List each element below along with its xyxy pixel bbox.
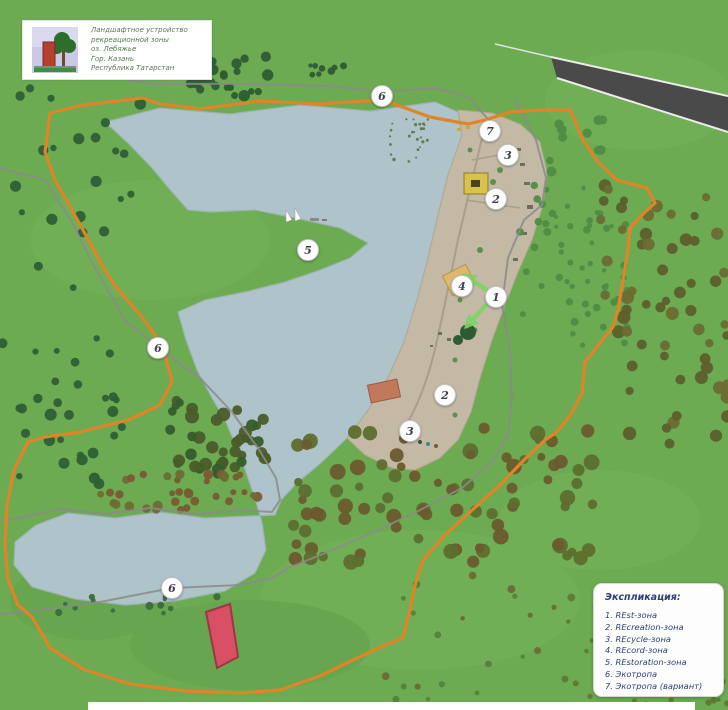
legend-list: 1. REst-зона2. REcreation-зона3. REcycle… xyxy=(605,610,723,692)
building-yellow-pavilion xyxy=(464,173,488,194)
map-title: Ландшафтное устройстворекреационной зоны… xyxy=(91,26,188,73)
title-line: Республика Татарстан xyxy=(91,64,188,73)
legend-item: 6. Экотропа xyxy=(605,669,723,681)
legend-item: 3. REcycle-зона xyxy=(605,634,723,646)
legend-item: 1. REst-зона xyxy=(605,610,723,622)
legend-item: 7. Экотропа (вариант) xyxy=(605,681,723,693)
legend-title: Экспликация: xyxy=(605,592,723,603)
title-line: оз. Лебяжье xyxy=(91,45,188,54)
title-block: Ландшафтное устройстворекреационной зоны… xyxy=(22,20,212,80)
landscape-logo-icon xyxy=(29,24,81,76)
legend-item: 2. REcreation-зона xyxy=(605,622,723,634)
page-bottom-strip xyxy=(88,702,695,710)
title-line: Ландшафтное устройство xyxy=(91,26,188,35)
legend-box: Экспликация: 1. REst-зона2. REcreation-з… xyxy=(593,583,724,697)
title-line: Гор. Казань xyxy=(91,55,188,64)
landscape-plan-map: Ландшафтное устройстворекреационной зоны… xyxy=(0,0,728,710)
legend-item: 4. REcord-зона xyxy=(605,645,723,657)
title-line: рекреационной зоны xyxy=(91,36,188,45)
legend-item: 5. REstoration-зона xyxy=(605,657,723,669)
